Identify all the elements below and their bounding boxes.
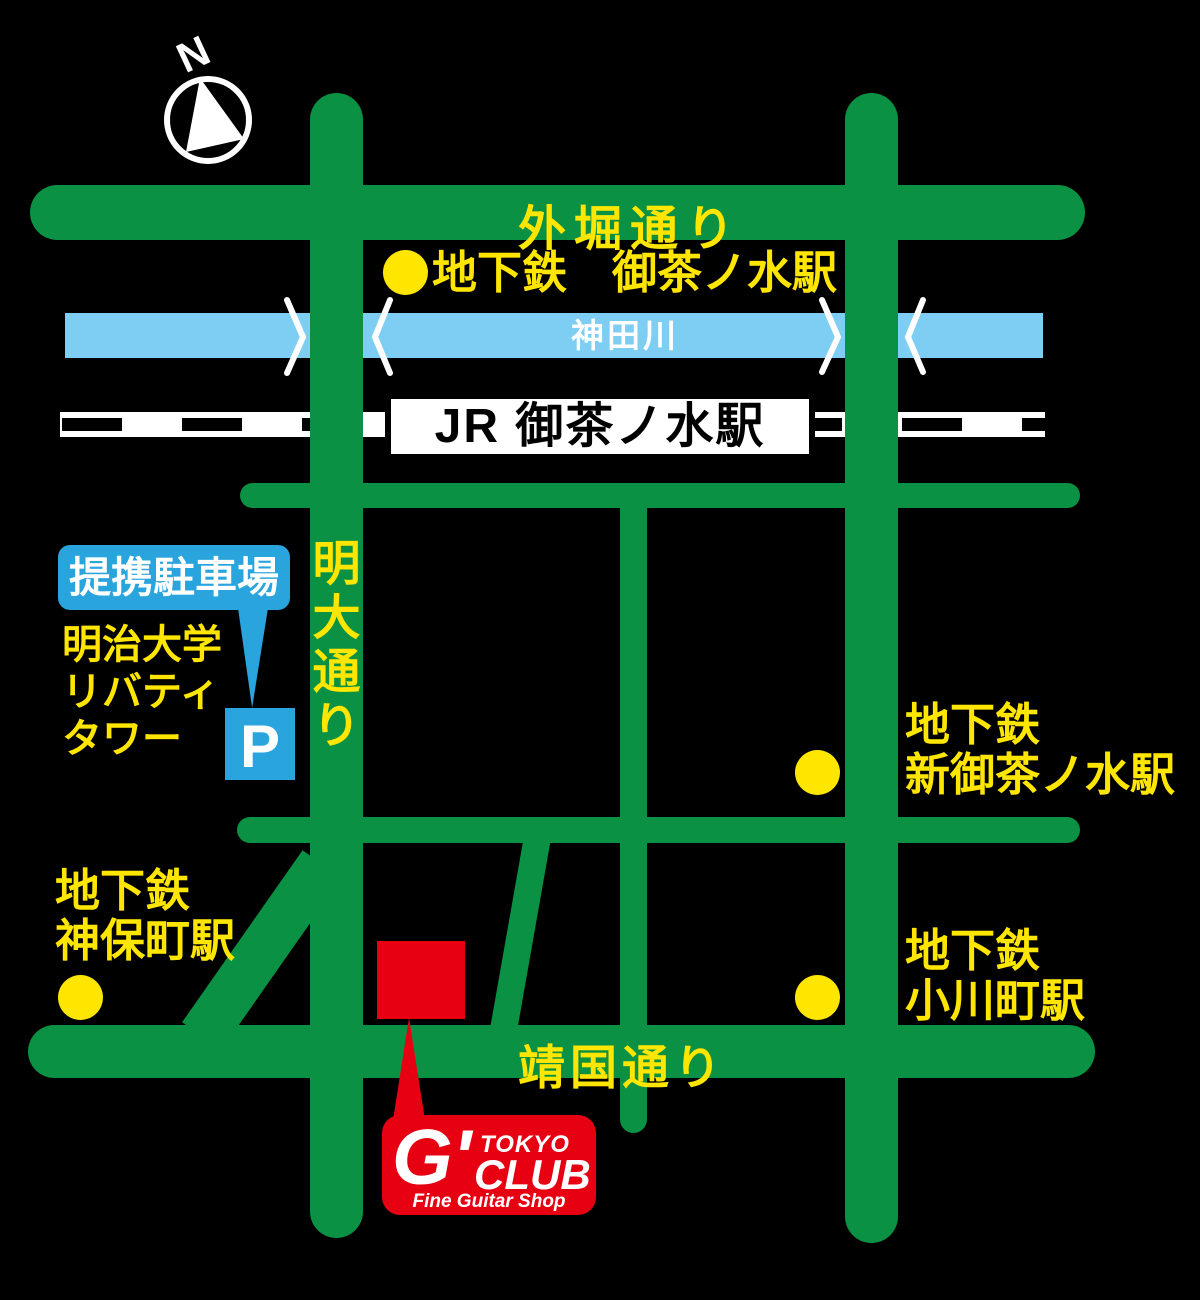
station-dot-ogawamachi <box>795 975 840 1020</box>
road-diagonal-middle <box>490 835 550 1032</box>
meidai-char: 通 <box>310 646 363 700</box>
meidai-char: り <box>310 700 363 754</box>
road-middle-horizontal-upper <box>240 483 1080 508</box>
gclub-logo: G' TOKYO CLUB Fine Guitar Shop <box>382 1115 596 1215</box>
station-label-line: 新御茶ノ水駅 <box>905 750 1175 800</box>
station-label-line: 小川町駅 <box>905 976 1085 1026</box>
river-label: 神田川 <box>545 317 705 355</box>
parking-bubble-tail <box>238 608 268 708</box>
meidai-dori-label: 明 大 通 り <box>310 538 363 754</box>
station-label-line: 地下鉄 <box>905 926 1085 976</box>
road-middle-horizontal-lower <box>237 817 1080 843</box>
shin-ochanomizu-label: 地下鉄 新御茶ノ水駅 <box>905 700 1175 800</box>
meidai-char: 明 <box>310 538 363 592</box>
logo-tagline: Fine Guitar Shop <box>382 1191 596 1213</box>
building-label-line: リバティ <box>62 669 222 716</box>
station-label-line: 地下鉄 <box>905 700 1175 750</box>
compass-icon: N <box>167 26 249 161</box>
station-label-line: 地下鉄 <box>55 866 235 916</box>
parking-bubble: 提携駐車場 <box>58 545 290 610</box>
station-dot-jimbocho <box>58 975 103 1020</box>
parking-icon: P <box>225 708 295 780</box>
station-label-line: 神保町駅 <box>55 916 235 966</box>
ogawamachi-label: 地下鉄 小川町駅 <box>905 926 1085 1026</box>
metro-ochanomizu-label: 地下鉄 御茶ノ水駅 <box>432 248 837 298</box>
compass-north-label: N <box>169 26 216 81</box>
jr-ochanomizu-station-box: JR 御茶ノ水駅 <box>385 393 815 460</box>
yasukuni-dori-label: 靖国通り <box>518 1029 726 1098</box>
access-map: 神田川 N JR 御茶ノ水駅 外堀通り 靖国通り 明 大 通 り <box>0 0 1200 1300</box>
station-dot-metro-ochanomizu <box>383 250 428 295</box>
jimbocho-label: 地下鉄 神保町駅 <box>55 866 235 966</box>
parking-building-label: 明治大学 リバティ タワー <box>62 622 222 763</box>
logo-g-mark: G' <box>392 1115 471 1199</box>
building-label-line: タワー <box>62 716 222 763</box>
shop-location-marker <box>377 941 465 1019</box>
meidai-char: 大 <box>310 592 363 646</box>
station-dot-shin-ochanomizu <box>795 750 840 795</box>
building-label-line: 明治大学 <box>62 622 222 669</box>
